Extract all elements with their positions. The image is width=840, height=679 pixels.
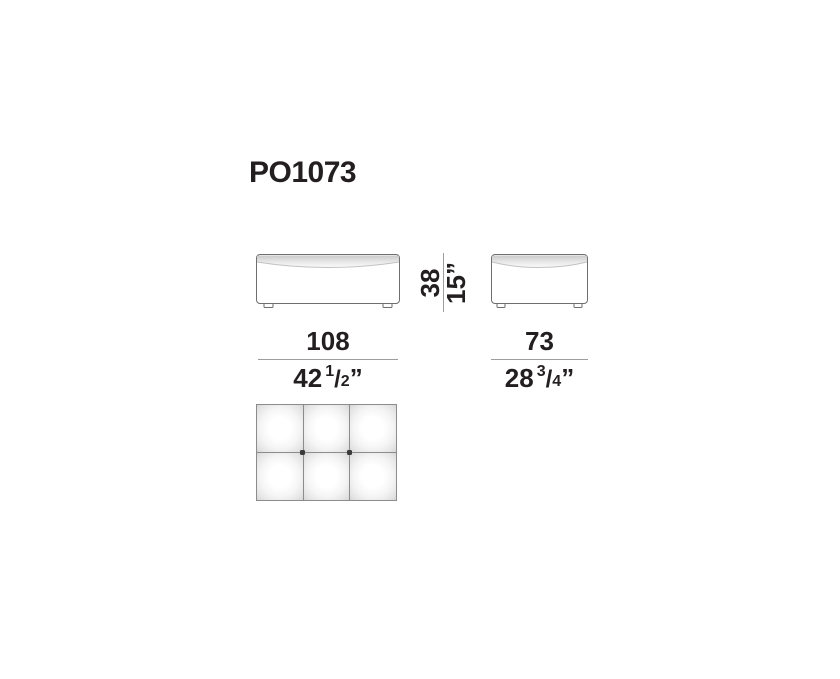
height-cm-label: 38: [416, 253, 444, 313]
fraction-slash: /: [334, 366, 341, 393]
depth-dimension-line: [491, 359, 588, 360]
depth-inches-whole: 28: [505, 363, 534, 393]
product-code: PO1073: [249, 156, 356, 190]
cushion-cell: [304, 453, 350, 500]
width-fraction-denominator: 2: [341, 373, 350, 390]
width-inches-label: 421/2”: [251, 364, 405, 394]
cushion-cell: [350, 405, 396, 452]
tufting-button-dot: [347, 450, 352, 455]
width-dimension-line: [258, 359, 398, 360]
width-inch-mark: ”: [350, 363, 363, 393]
spec-sheet: PO1073: [0, 0, 840, 679]
cushion-cell: [257, 453, 303, 500]
height-inches-label: 15”: [442, 253, 470, 313]
cushion-cell: [257, 405, 303, 452]
top-view-drawing: [256, 404, 397, 501]
depth-fraction-numerator: 3: [537, 363, 546, 380]
depth-cm-label: 73: [484, 328, 595, 354]
depth-inch-mark: ”: [561, 363, 574, 393]
depth-inches-label: 283/4”: [484, 364, 595, 394]
side-elevation-drawing: [491, 254, 588, 311]
width-cm-label: 108: [251, 328, 405, 354]
front-elevation-drawing: [256, 254, 400, 311]
depth-dimension: 73 283/4”: [484, 328, 595, 394]
cushion-cell: [304, 405, 350, 452]
tufting-button-dot: [300, 450, 305, 455]
cushion-cell: [350, 453, 396, 500]
width-dimension: 108 421/2”: [251, 328, 405, 394]
depth-fraction-denominator: 4: [552, 373, 561, 390]
width-fraction-numerator: 1: [325, 363, 334, 380]
width-inches-whole: 42: [293, 363, 322, 393]
